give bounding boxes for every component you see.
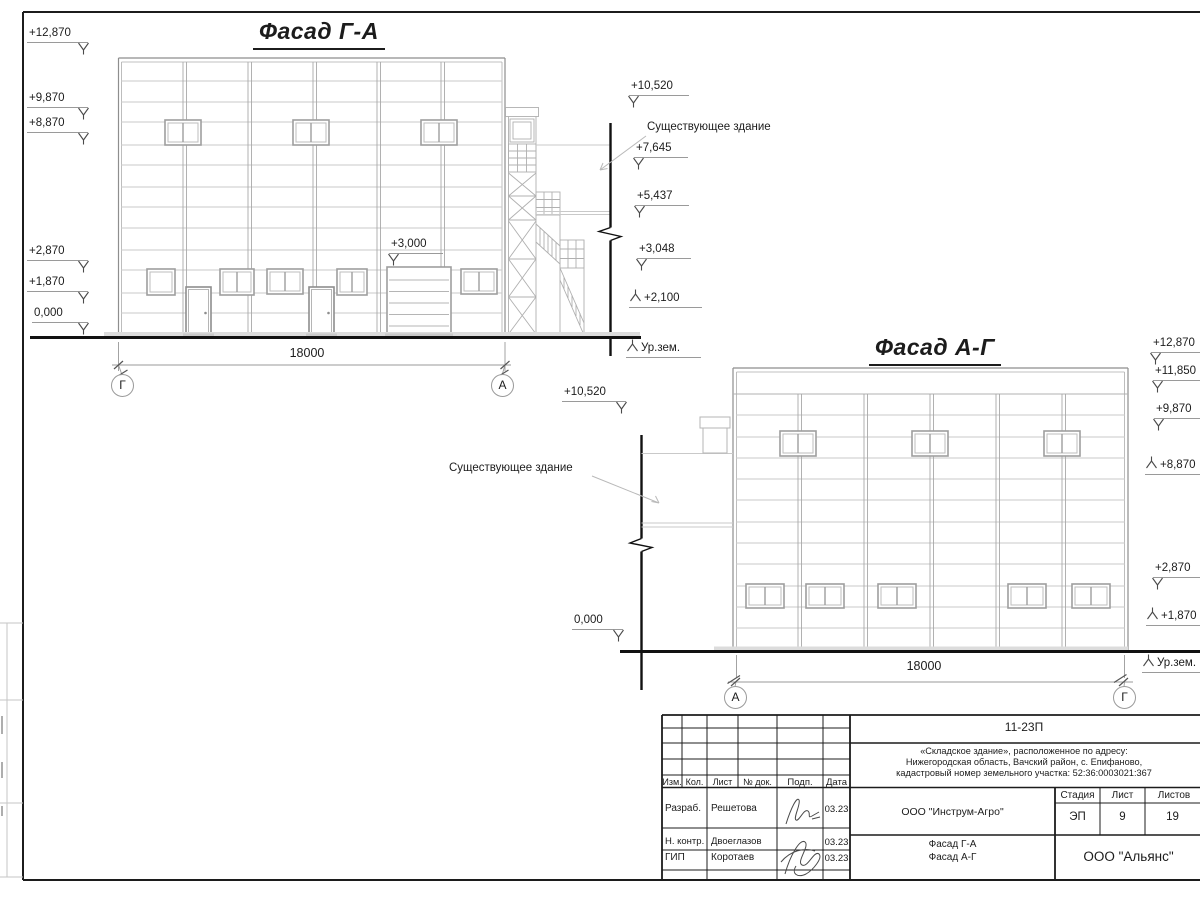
axis-marker: А [491,374,514,397]
date-value: 03.23 [823,853,850,864]
elevation-mark: +10,520 [562,386,626,402]
elevation-mark: +10,520 [629,80,689,96]
level-arrow-up-icon [629,289,642,302]
elevation-mark: +9,870 [1154,403,1200,419]
sheets-total: 19 [1145,811,1200,823]
signatures [781,799,820,875]
level-arrow-down-icon [77,260,90,273]
elevation-mark: +8,870 [27,117,88,133]
elevation-mark: +11,850 [1153,365,1200,381]
facade1-annotation: Существующее здание [647,121,771,133]
axis-marker: Г [111,374,134,397]
level-arrow-down-icon [1151,577,1164,590]
elevation-mark: +1,870 [1146,610,1200,626]
facade2-plinth [714,647,1128,651]
elevation-mark: +3,000 [389,238,443,254]
signature-1 [786,799,820,824]
project-address-line2: Нижегородская область, Вачский район, с.… [852,757,1196,767]
col-header-kol: Кол. [682,777,707,787]
level-arrow-down-icon [632,157,645,170]
facade1-existing-building-line [599,123,621,356]
facade2-annotation-leader [592,476,659,503]
elevation-mark: +12,870 [27,27,88,43]
stage-header: Стадия [1055,790,1100,801]
col-header-podp: Подп. [777,777,823,788]
facade2-title: Фасад А-Г [869,334,1001,366]
axis-marker: Г [1113,686,1136,709]
elevation-mark: +2,870 [1153,562,1200,578]
sheets-header: Листов [1145,790,1200,801]
level-arrow-down-icon [77,42,90,55]
facade2-building [733,368,1128,650]
elevation-mark: +7,645 [634,142,688,158]
level-arrow-down-icon [633,205,646,218]
level-arrow-down-icon [615,401,628,414]
sheet-header: Лист [1100,790,1145,801]
facade2-annotation: Существующее здание [449,462,573,474]
elevation-mark: +12,870 [1151,337,1200,353]
project-address-line1: «Складское здание», расположенное по адр… [852,746,1196,756]
elevation-mark: 0,000 [32,307,88,323]
level-arrow-up-icon [1146,607,1159,620]
margin-stamp [0,623,23,877]
role-label: ГИП [665,852,685,863]
facade1-gate [387,267,451,336]
company-name: ООО "Альянс" [1057,849,1200,864]
date-value: 03.23 [823,837,850,848]
level-arrow-down-icon [635,258,648,271]
level-arrow-down-icon [627,95,640,108]
project-address-line3: кадастровый номер земельного участка: 52… [852,768,1196,778]
level-arrow-down-icon [77,322,90,335]
elevation-mark: +5,437 [635,190,689,206]
project-code: 11-23П [850,720,1198,734]
role-label: Н. контр. [665,836,704,847]
facade1-title: Фасад Г-А [253,18,385,50]
elevation-mark: +8,870 [1145,459,1200,475]
person-name: Решетова [711,803,757,814]
level-arrow-down-icon [1151,380,1164,393]
col-header-doc: № док. [738,777,777,787]
level-arrow-up-icon [626,339,639,352]
level-arrow-down-icon [1152,418,1165,431]
drawing-name-line2: Фасад А-Г [850,852,1055,863]
level-arrow-up-icon [1145,456,1158,469]
sheet-number: 9 [1100,811,1145,823]
elevation-mark: +1,870 [27,276,88,292]
level-arrow-down-icon [612,629,625,642]
facade1-dimension-label: 18000 [282,346,332,360]
col-header-data: Дата [823,777,850,788]
person-name: Двоеглазов [711,836,762,847]
ground-level-mark: Ур.зем. [626,342,701,358]
level-arrow-down-icon [77,132,90,145]
ground-level-mark: Ур.зем. [1142,657,1200,673]
facade1-doors [186,287,334,336]
person-name: Коротаев [711,852,754,863]
axis-marker: А [724,686,747,709]
drawing-name-line1: Фасад Г-А [850,839,1055,850]
col-header-izm: Изм. [662,777,682,787]
level-arrow-down-icon [1149,352,1162,365]
facade1-stair-tower [505,108,590,336]
facade2-dimension-label: 18000 [899,659,949,673]
level-arrow-up-icon [1142,654,1155,667]
facade1-connectors [536,145,610,215]
date-value: 03.23 [823,804,850,815]
elevation-mark: 0,000 [572,614,623,630]
elevation-mark: +2,870 [27,245,88,261]
level-arrow-down-icon [387,253,400,266]
level-arrow-down-icon [77,291,90,304]
elevation-mark: +2,100 [629,292,702,308]
role-label: Разраб. [665,803,701,814]
elevation-mark: +9,870 [27,92,88,108]
elevation-mark: +3,048 [637,243,691,259]
drawing-sheet: Фасад Г-А Фасад А-Г +12,870 +9,870 +8,87… [0,0,1200,900]
org-name: ООО "Инструм-Агро" [850,806,1055,818]
stage-value: ЭП [1055,811,1100,823]
col-header-list: Лист [707,777,738,787]
